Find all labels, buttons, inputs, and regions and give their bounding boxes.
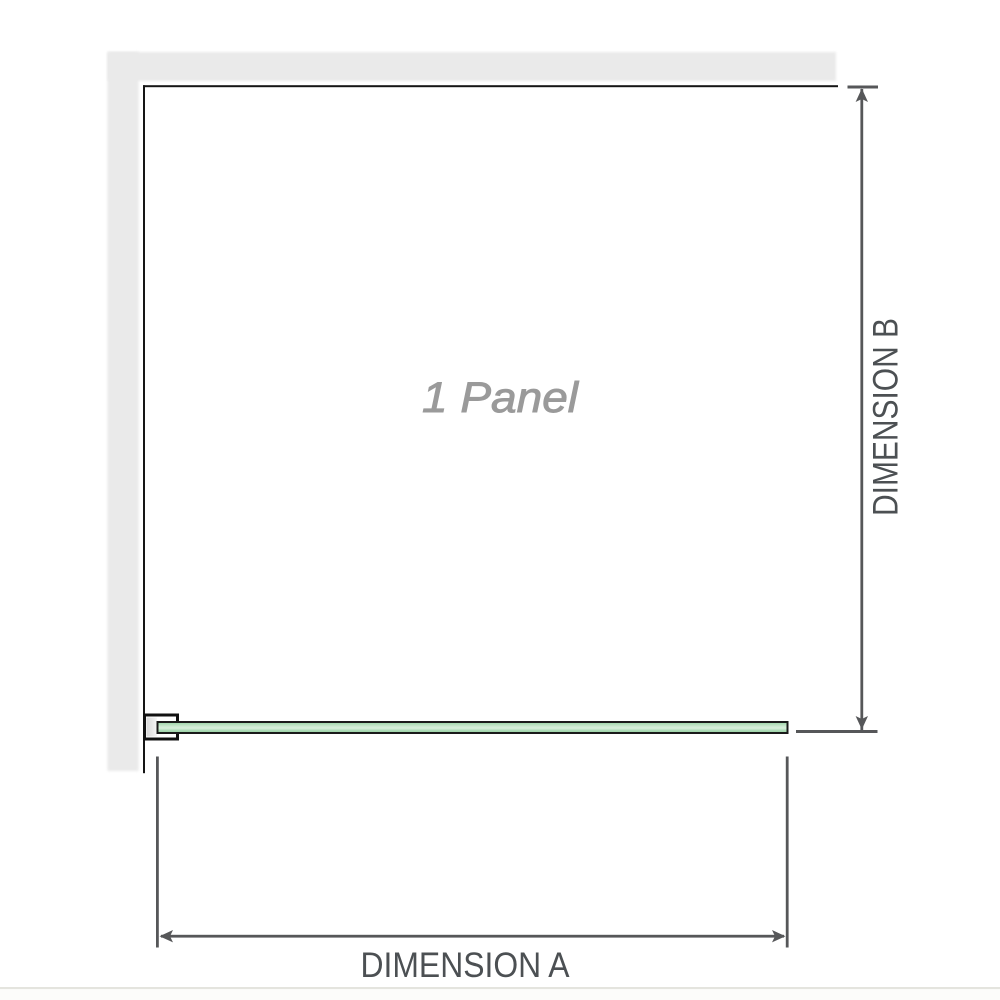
svg-text:DIMENSION A: DIMENSION A: [361, 946, 571, 985]
svg-text:1 Panel: 1 Panel: [422, 375, 580, 422]
svg-text:DIMENSION B: DIMENSION B: [867, 318, 906, 516]
